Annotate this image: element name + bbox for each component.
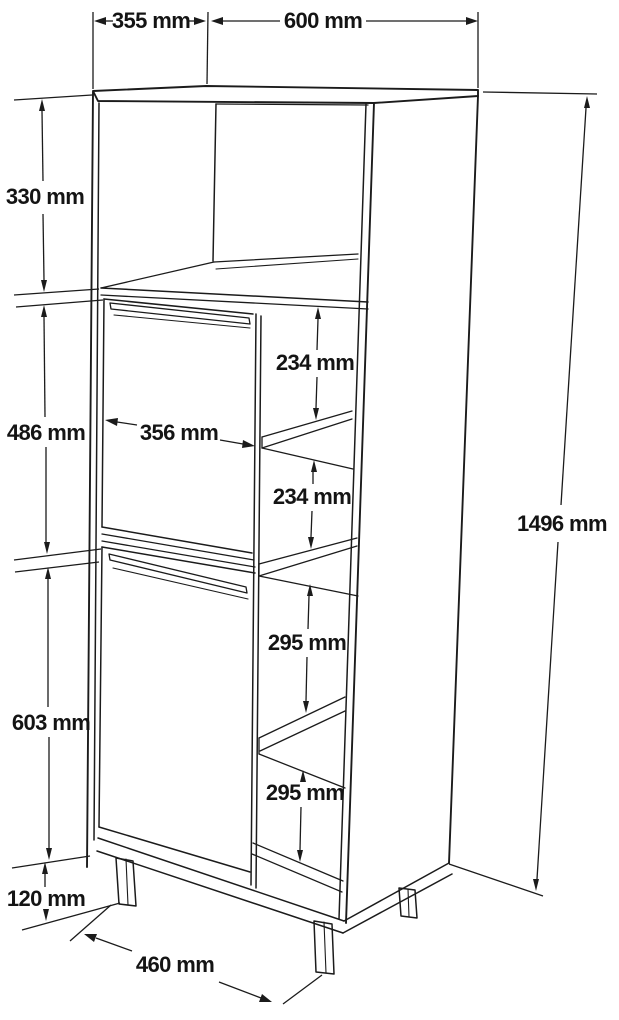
dim-label-1496: 1496 mm (517, 511, 607, 536)
arrowhead (297, 850, 303, 862)
lower-door (99, 547, 255, 872)
dim-label-234-lower: 234 mm (273, 484, 351, 509)
arrowhead (39, 99, 45, 111)
dim-label-330: 330 mm (6, 184, 84, 209)
dim-label-295-upper: 295 mm (268, 630, 346, 655)
arrowhead (84, 934, 97, 942)
arrowhead (315, 307, 321, 319)
arrowhead (303, 701, 309, 713)
arrowhead (242, 440, 255, 448)
arrowhead (194, 17, 206, 25)
front-left-leg (116, 858, 136, 906)
arrowhead (584, 96, 590, 108)
dim-label-600: 600 mm (284, 8, 362, 33)
dimension-600: 600 mm (211, 8, 478, 88)
cabinet-top-panel (93, 86, 478, 103)
arrowhead (41, 305, 47, 317)
arrowhead (44, 542, 50, 554)
dim-label-356: 356 mm (140, 420, 218, 445)
dimension-120: 120 mm (7, 862, 120, 930)
cabinet-line-art (87, 86, 478, 974)
dim-label-295-lower: 295 mm (266, 780, 344, 805)
arrowhead (105, 418, 118, 426)
line-art-canvas: 355 mm 600 mm 330 mm 486 mm 356 mm (0, 0, 619, 1020)
cabinet-dimension-diagram: 355 mm 600 mm 330 mm 486 mm 356 mm (0, 0, 619, 1020)
dimension-295-upper: 295 mm (268, 584, 346, 713)
dimension-355: 355 mm (93, 8, 208, 89)
back-right-leg (399, 888, 417, 918)
dimension-356: 356 mm (105, 418, 255, 448)
arrowhead (41, 280, 47, 292)
microwave-compartment (101, 104, 368, 309)
dimension-330: 330 mm (6, 95, 99, 295)
arrowhead (311, 460, 317, 472)
dim-label-355: 355 mm (112, 8, 190, 33)
dimension-295-lower: 295 mm (266, 770, 344, 862)
dim-label-603: 603 mm (12, 710, 90, 735)
arrowhead (46, 848, 52, 860)
arrowhead (308, 537, 314, 549)
dimension-234-upper: 234 mm (276, 307, 354, 420)
dimension-234-lower: 234 mm (273, 460, 351, 549)
open-shelf-mid (259, 538, 358, 596)
dimension-603: 603 mm (12, 562, 99, 868)
arrowhead (94, 17, 106, 25)
dim-label-460: 460 mm (136, 952, 214, 977)
arrowhead (313, 408, 319, 420)
center-divider (251, 314, 261, 888)
open-shelf-upper-1 (262, 411, 353, 469)
arrowhead (259, 994, 272, 1002)
arrowhead (466, 17, 478, 25)
dim-label-486: 486 mm (7, 420, 85, 445)
dim-label-120: 120 mm (7, 886, 85, 911)
dim-label-234-upper: 234 mm (276, 350, 354, 375)
dimension-486: 486 mm (7, 300, 103, 560)
arrowhead (533, 879, 539, 891)
arrowhead (211, 17, 223, 25)
dimension-460: 460 mm (70, 905, 322, 1004)
